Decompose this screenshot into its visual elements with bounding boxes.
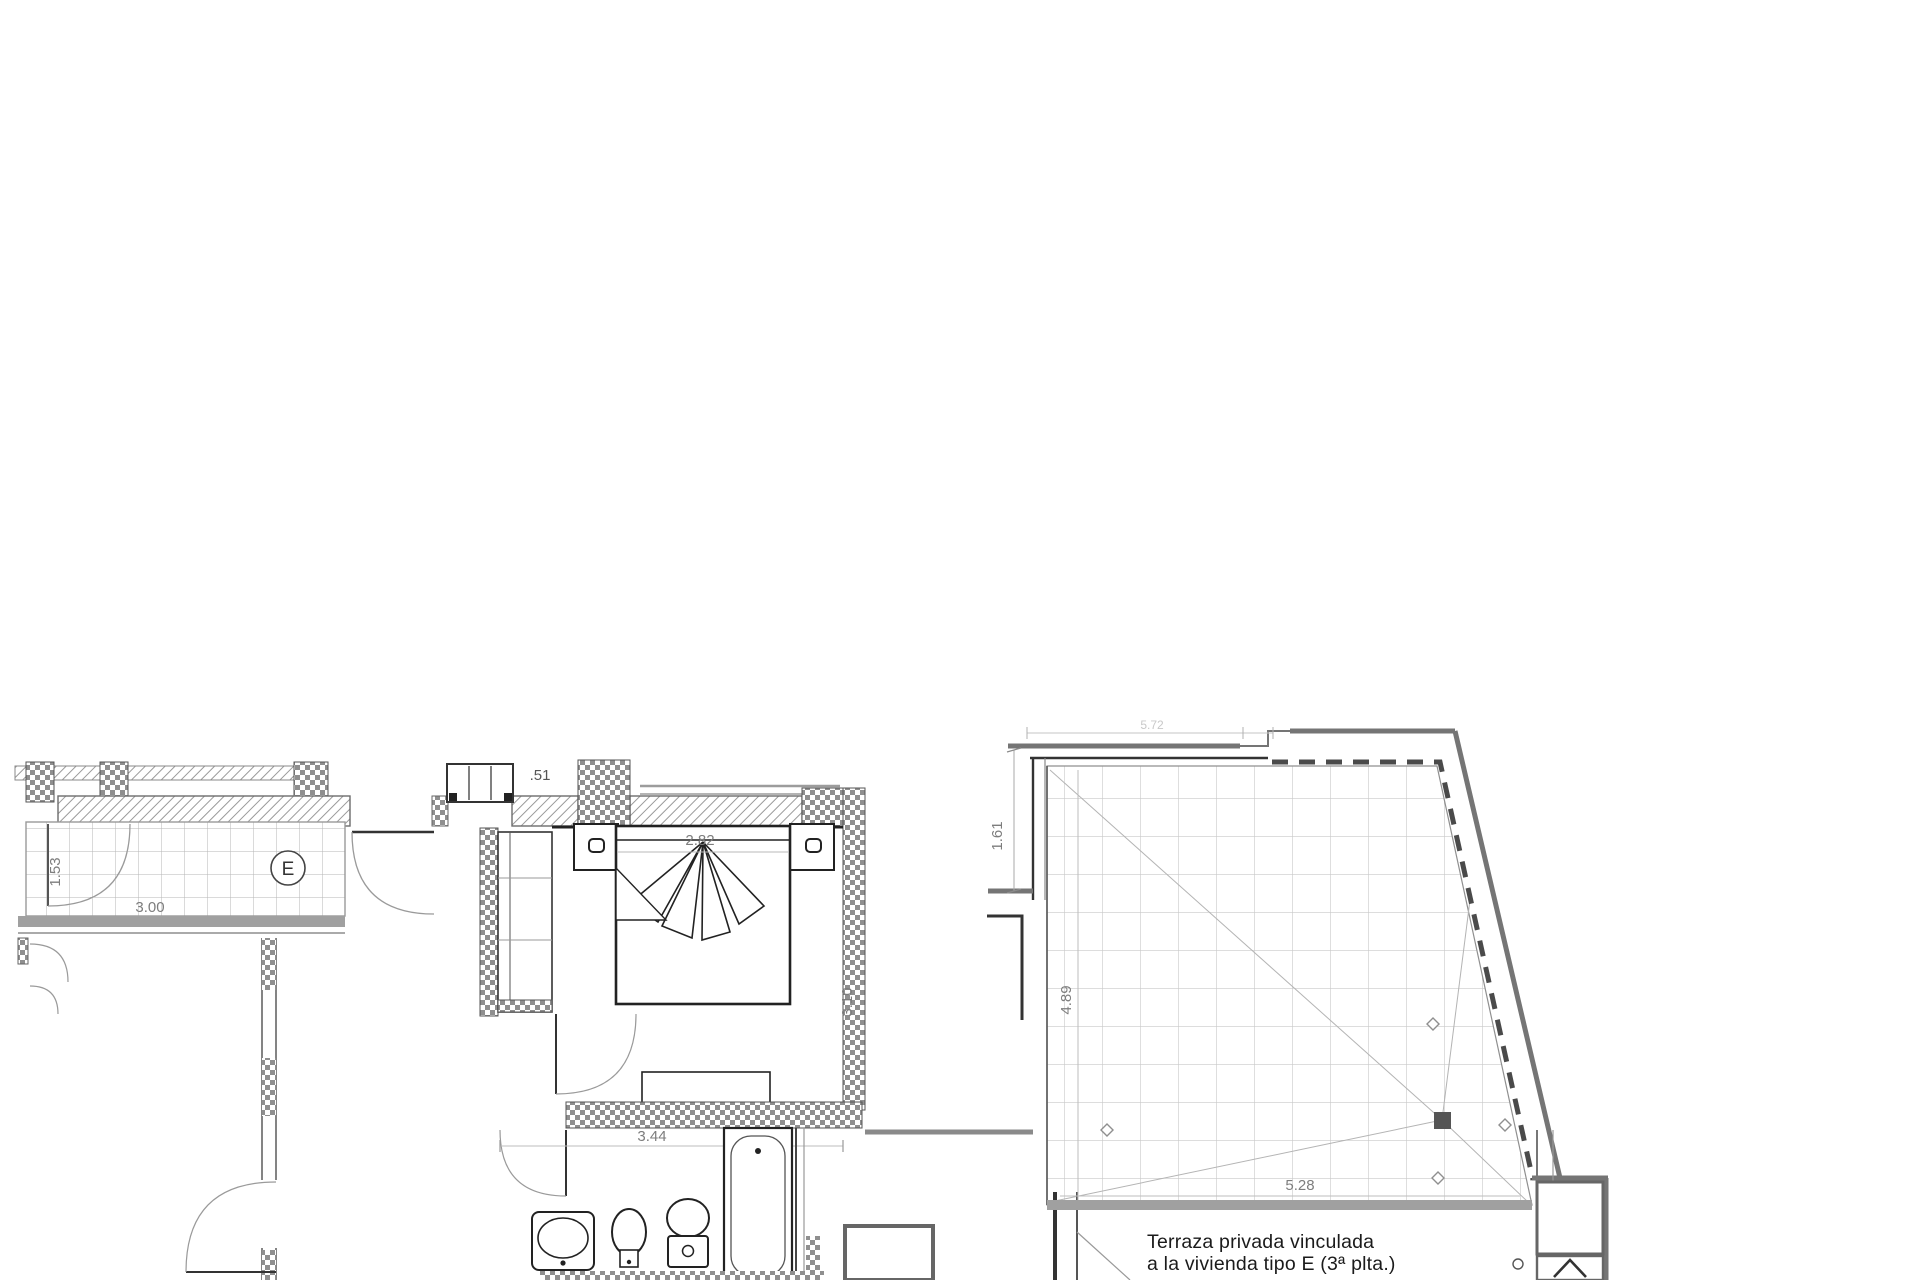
floor-plan-page: E 1.53 3.00 .51 2.82 3.10 3.44 1.61 4.89… (0, 0, 1920, 1280)
bottom-wall-band (540, 1271, 824, 1280)
door-jamb (432, 796, 448, 826)
wall-lamp-icon (806, 839, 821, 852)
door-swing-line (1077, 1232, 1130, 1280)
terrace-caption-line1: Terraza privada vinculada (1147, 1231, 1547, 1253)
bed-bench (642, 1072, 770, 1106)
wall-stub (987, 916, 1022, 1020)
door-swing-arc (30, 944, 68, 982)
dim-bedroom-width: 2.82 (685, 832, 714, 849)
door-swing-arc (556, 1014, 636, 1094)
balcony-box (845, 1226, 933, 1280)
terrace-bottom-edge (1047, 1200, 1532, 1210)
dim-right-upper: 1.61 (989, 821, 1006, 850)
dim-bedroom-depth: 3.10 (839, 987, 856, 1016)
door-swing-arc (500, 1130, 566, 1196)
closet-end-wall (498, 1000, 552, 1012)
hall-wall-seg (262, 1250, 276, 1280)
exterior-wall (512, 796, 578, 826)
wall-pier (578, 760, 630, 828)
right-plan (987, 727, 1608, 1280)
niche-mark (504, 793, 512, 801)
closet (498, 832, 552, 1012)
terrace-caption: Terraza privada vinculada a la vivienda … (1147, 1231, 1547, 1275)
wall-lamp-icon (589, 839, 604, 852)
closet-wall (480, 828, 498, 1016)
dim-bathroom-width: 3.44 (637, 1128, 666, 1145)
hall-wall-seg (262, 938, 276, 990)
bedroom-right-wall (843, 788, 865, 1110)
door-opening (258, 1180, 280, 1248)
bidet-base (620, 1250, 638, 1267)
wall-pier (802, 788, 844, 828)
bidet (612, 1209, 646, 1255)
terrace-caption-line2: a la vivienda tipo E (3ª plta.) (1147, 1253, 1547, 1275)
level-marker: .51 (530, 767, 551, 784)
toilet-bowl (667, 1199, 709, 1237)
room-label-e: E (282, 859, 295, 880)
dim-right-inner: 4.89 (1058, 985, 1075, 1014)
door-swing-arc (352, 832, 434, 914)
bidet-tap (627, 1260, 631, 1264)
niche-mark (449, 793, 457, 801)
sink-basin (538, 1218, 588, 1258)
sink-tap (560, 1260, 565, 1265)
wall-pier (26, 762, 54, 802)
floor-plan-drawing: E 1.53 3.00 .51 2.82 3.10 3.44 1.61 4.89… (0, 0, 1920, 1280)
door-swing-arc (30, 986, 58, 1014)
wall-stub (18, 938, 28, 964)
dim-terrace-width: 3.00 (135, 899, 164, 916)
terrace-edge (18, 916, 345, 927)
bathroom-top-wall (566, 1102, 862, 1128)
toilet-button (683, 1246, 694, 1257)
dim-terrace-depth: 1.53 (47, 857, 64, 886)
exterior-wall (630, 796, 802, 826)
dim-right-bottom: 5.28 (1285, 1177, 1314, 1194)
dim-right-top-faint: 5.72 (1140, 718, 1164, 732)
left-plan (15, 760, 1033, 1280)
outer-wall-strip (15, 766, 315, 780)
bathtub-drain (755, 1148, 761, 1154)
hall-wall-seg (262, 1058, 276, 1116)
bathtub-inner (731, 1136, 785, 1276)
drain-square (1434, 1112, 1451, 1129)
